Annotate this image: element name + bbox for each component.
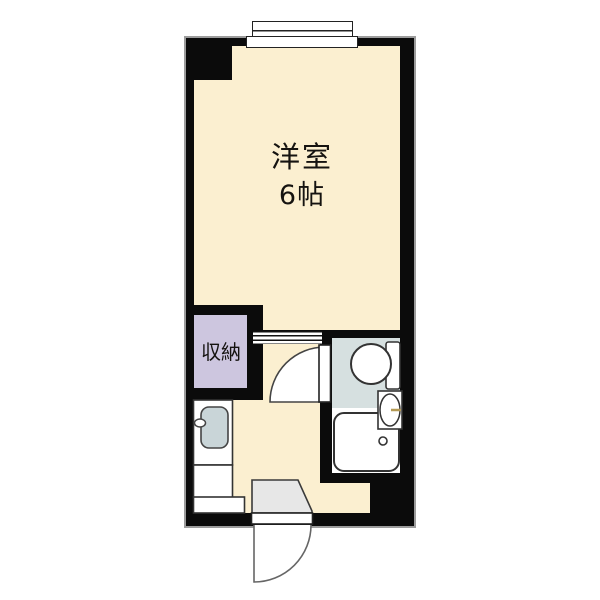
sink-faucet-icon xyxy=(195,419,206,427)
kitchen-counter-lower xyxy=(194,497,245,513)
main-room-label: 洋室 xyxy=(196,143,408,172)
entrance-door-swing-arc xyxy=(254,525,311,582)
closet-label: 収納 xyxy=(190,342,252,362)
floor-plan: 洋室 6帖 収納 xyxy=(0,0,600,600)
entrance-step xyxy=(252,480,312,513)
drain-icon xyxy=(379,437,387,445)
kitchen-sink-icon xyxy=(201,407,228,448)
bathroom-door-swing-arc xyxy=(270,347,325,402)
toilet-bowl-icon xyxy=(351,344,391,384)
entrance-door-leaf xyxy=(252,513,313,524)
fixtures-layer xyxy=(0,0,600,600)
kitchen-counter xyxy=(194,465,233,498)
main-room-size-label: 6帖 xyxy=(196,182,408,209)
bathroom-door-leaf xyxy=(319,345,331,402)
